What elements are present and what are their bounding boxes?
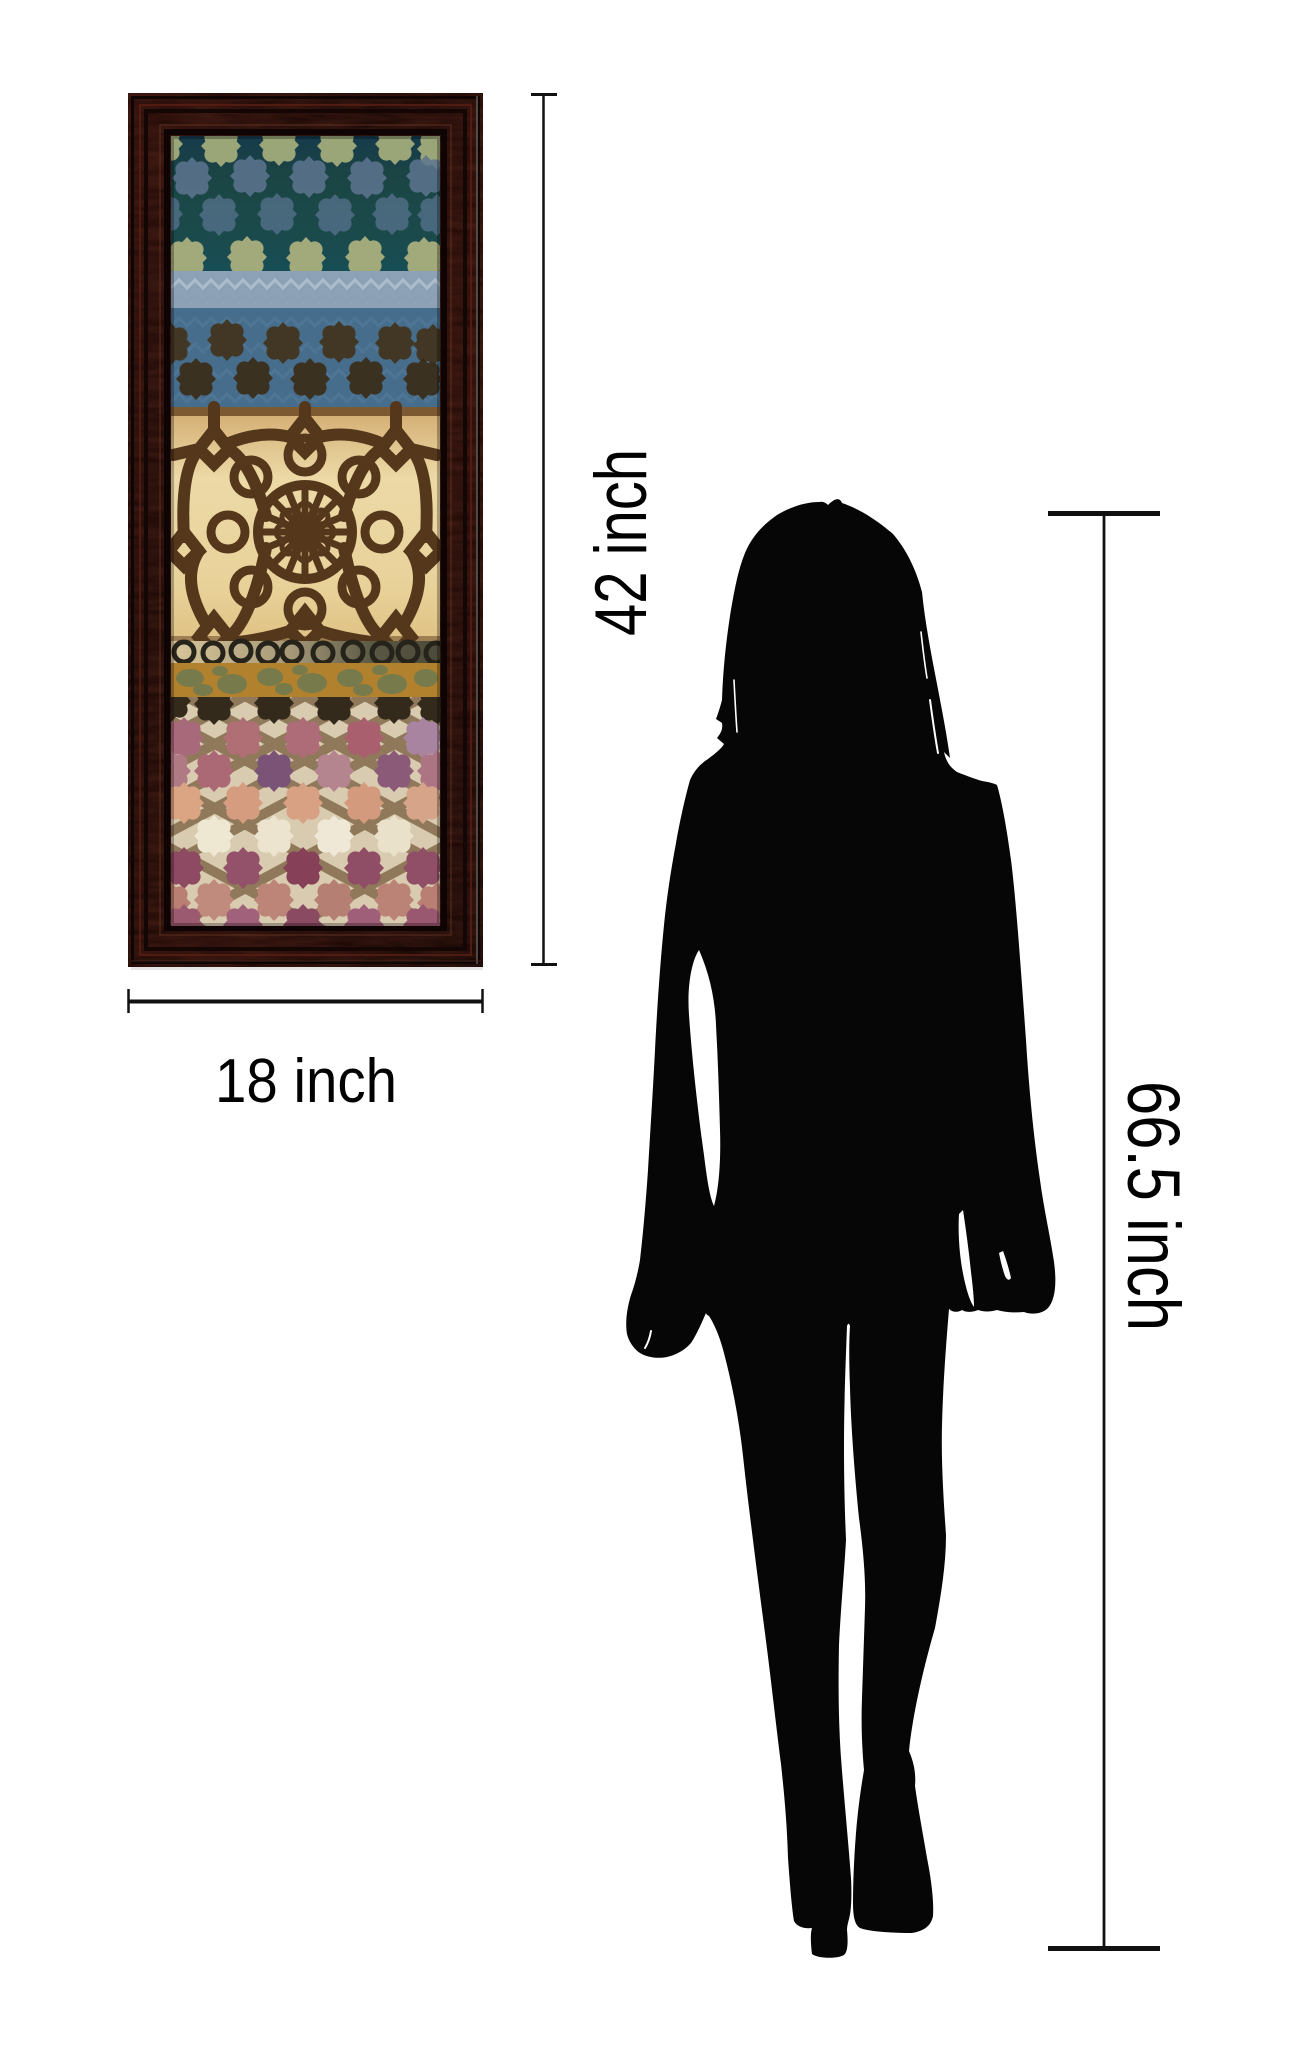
svg-text:18 inch: 18 inch — [215, 1047, 397, 1116]
svg-text:66.5 inch: 66.5 inch — [1112, 1081, 1195, 1331]
svg-text:42 inch: 42 inch — [581, 449, 662, 636]
